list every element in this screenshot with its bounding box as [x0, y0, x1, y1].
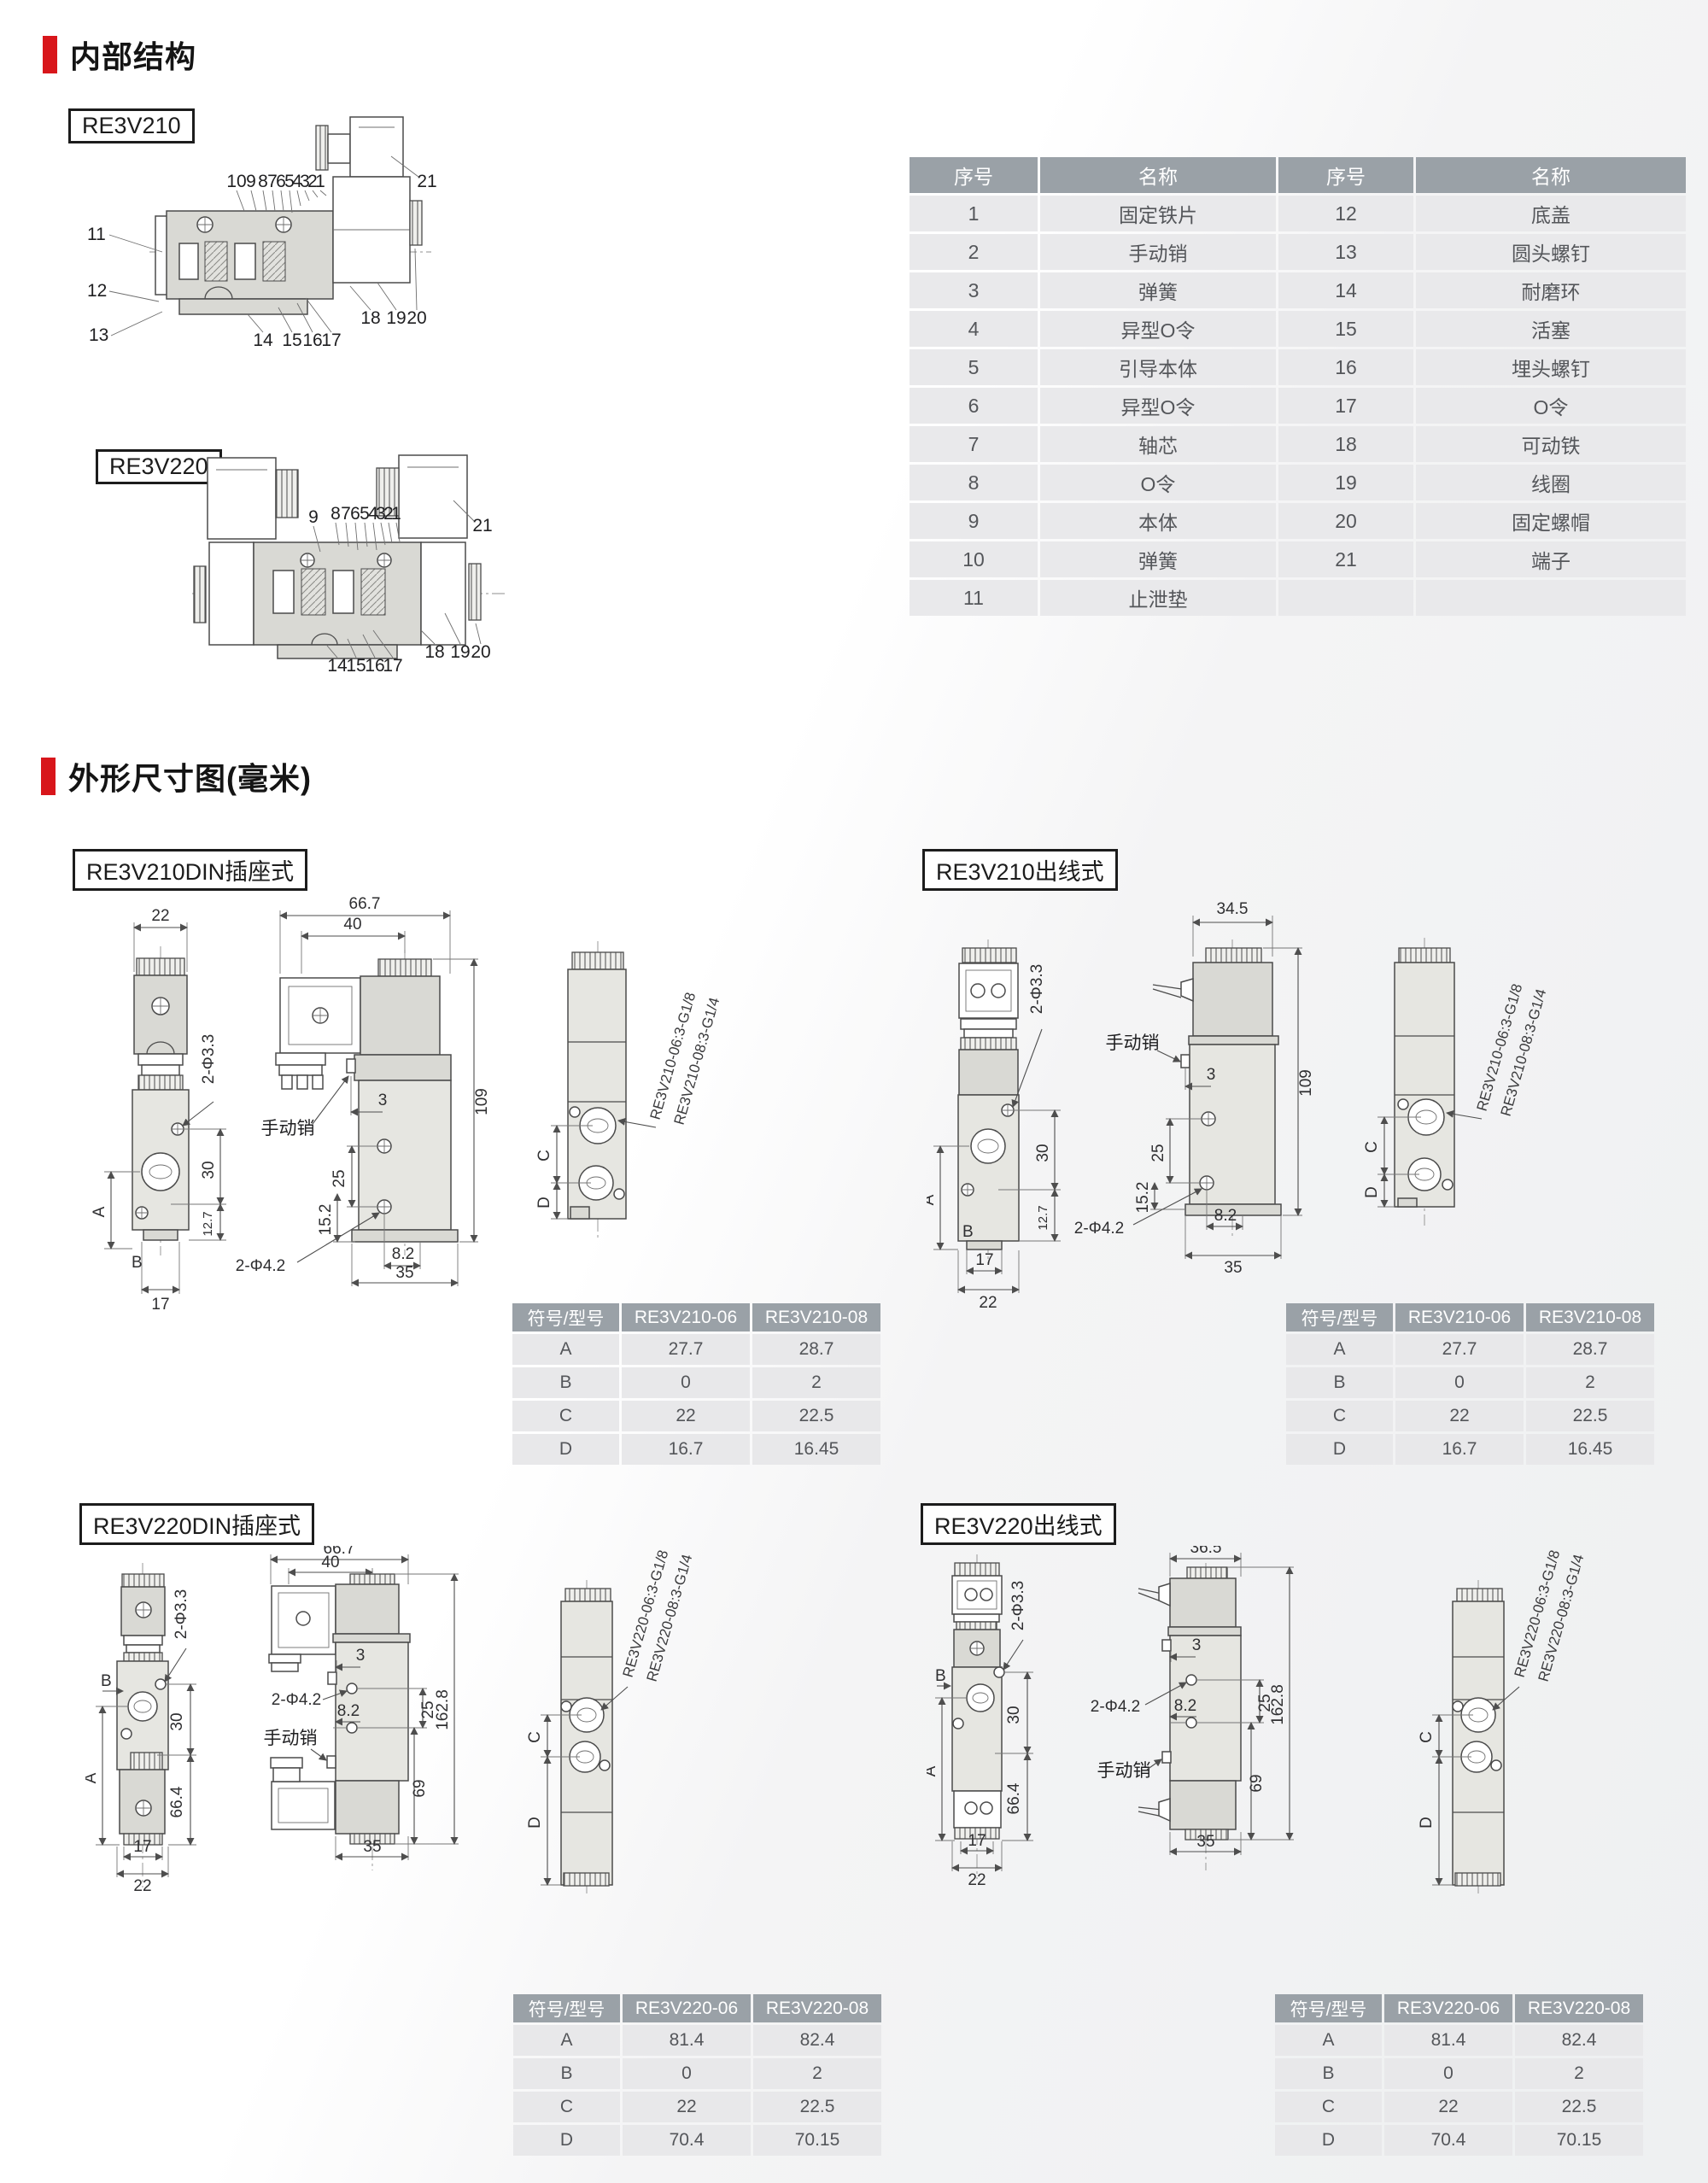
- cell: C: [1275, 2092, 1382, 2122]
- cell: 8: [910, 465, 1038, 500]
- dim-label: 2-Φ3.3: [1028, 964, 1046, 1014]
- cell: 16.7: [622, 1434, 750, 1465]
- table-row: A27.728.7: [512, 1334, 880, 1365]
- manual-pin-label: 手动销: [264, 1729, 318, 1748]
- callout: 10: [226, 172, 246, 191]
- cell: 13: [1278, 234, 1413, 270]
- front-view: 22 2-Φ3.3 30 12.7 A B 17: [91, 907, 226, 1314]
- dim-label: B: [101, 1672, 112, 1690]
- callout: 20: [407, 308, 426, 328]
- cell: 端子: [1416, 541, 1686, 577]
- cell: 异型O令: [1040, 388, 1276, 424]
- dim-label: C: [1363, 1141, 1381, 1153]
- dim-label: 2-Φ4.2: [1074, 1220, 1124, 1238]
- col-header: RE3V210-06: [622, 1303, 750, 1331]
- dim-label: 66.4: [168, 1786, 186, 1817]
- cell: 0: [622, 1367, 750, 1398]
- table-row: 10弹簧21端子: [910, 541, 1686, 577]
- red-accent-bar: [43, 36, 57, 73]
- cell: 22.5: [753, 2092, 881, 2122]
- table-row: D16.716.45: [512, 1434, 880, 1465]
- callout-numbers: 9 8 7 6 5 4 3 2 1 14 15 16 17 18 19 20 2…: [308, 500, 493, 676]
- cell: C: [512, 1401, 619, 1431]
- cell: 可动铁: [1416, 426, 1686, 462]
- cell: 线圈: [1416, 465, 1686, 500]
- cell: B: [1286, 1367, 1393, 1398]
- col-header: 符号/型号: [1275, 1994, 1382, 2022]
- dim-label: 66.4: [1005, 1782, 1023, 1814]
- section-internal-structure-header: 内部结构: [43, 32, 196, 77]
- dim-label: 40: [321, 1554, 339, 1571]
- callout: 3: [376, 504, 386, 524]
- callout: 16: [302, 331, 322, 350]
- cell: 固定铁片: [1040, 196, 1276, 231]
- cell: 4: [910, 311, 1038, 347]
- table-row: C2222.5: [1286, 1401, 1654, 1431]
- callout: 3: [300, 172, 310, 191]
- cell: 81.4: [1384, 2025, 1512, 2056]
- cell: 19: [1278, 465, 1413, 500]
- dim-label: 162.8: [1269, 1684, 1287, 1725]
- dim-label: 22: [151, 907, 169, 925]
- dim-label: 17: [968, 1832, 986, 1850]
- dim-label: 25: [330, 1169, 348, 1187]
- callout: 18: [424, 642, 444, 662]
- dim-label: 12.7: [201, 1211, 215, 1236]
- callout: 2: [307, 172, 318, 191]
- dim-label: 162.8: [434, 1689, 452, 1730]
- cell: 70.15: [1515, 2125, 1643, 2156]
- callout: 20: [471, 642, 490, 662]
- cell: 2: [1526, 1367, 1654, 1398]
- dim-label: 2-Φ3.3: [1009, 1581, 1027, 1630]
- cell: 耐磨环: [1416, 272, 1686, 308]
- dim-label: 109: [473, 1088, 491, 1115]
- catalog-page: 内部结构 RE3V210 RE3V220 10 9 8 7 6 5 4 3 2 …: [0, 0, 1708, 2183]
- callout: 17: [383, 656, 402, 676]
- cell: 12: [1278, 196, 1413, 231]
- table-row: B02: [512, 1367, 880, 1398]
- dim-label: A: [927, 1765, 939, 1776]
- back-view: C D RE3V210-06:3-G1/8 RE3V210-08:3-G1/4: [1363, 938, 1549, 1226]
- parts-header-row: 序号 名称 序号 名称: [910, 157, 1686, 193]
- callout: 4: [292, 172, 302, 191]
- cell: 28.7: [752, 1334, 880, 1365]
- dim-label: D: [526, 1817, 544, 1829]
- table-row: 8O令19线圈: [910, 465, 1686, 500]
- dim-label: 2-Φ3.3: [173, 1589, 190, 1639]
- col-header: RE3V220-06: [1384, 1994, 1512, 2022]
- dim-header-row: 符号/型号 RE3V220-06 RE3V220-08: [1275, 1994, 1643, 2022]
- side-view: 36.5 3 2-Φ4.2 8.2 25 162.8 手动销 69 35: [1091, 1546, 1294, 1870]
- col-header: RE3V210-08: [752, 1303, 880, 1331]
- re3v210-din-dim-table: 符号/型号 RE3V210-06 RE3V210-08 A27.728.7 B0…: [510, 1301, 883, 1467]
- cell: 6: [910, 388, 1038, 424]
- col-header: RE3V220-08: [1515, 1994, 1643, 2022]
- col-header: RE3V220-06: [623, 1994, 751, 2022]
- dim-label: 8.2: [337, 1702, 360, 1720]
- thread-spec-label: RE3V220-08:3-G1/4: [1535, 1553, 1588, 1683]
- cell: 82.4: [1515, 2025, 1643, 2056]
- re3v210-din-drawing: 22 2-Φ3.3 30 12.7 A B 17 66.7 40: [85, 897, 888, 1324]
- callout: 19: [450, 642, 470, 662]
- table-row: C2222.5: [1275, 2092, 1643, 2122]
- cell: 22: [1395, 1401, 1524, 1431]
- cell: 18: [1278, 426, 1413, 462]
- cell: 22: [622, 1401, 750, 1431]
- dim-label: 8.2: [392, 1245, 414, 1263]
- callout: 7: [267, 172, 278, 191]
- callout: 6: [350, 504, 360, 524]
- callout: 1: [315, 172, 325, 191]
- cell: 11: [910, 580, 1038, 616]
- table-row: D70.470.15: [1275, 2125, 1643, 2156]
- block-label-re3v220-wire: RE3V220出线式: [921, 1503, 1116, 1545]
- col-header: 符号/型号: [512, 1303, 619, 1331]
- dim-header-row: 符号/型号 RE3V220-06 RE3V220-08: [513, 1994, 881, 2022]
- table-row: C2222.5: [513, 2092, 881, 2122]
- dim-label: D: [1418, 1817, 1436, 1829]
- col-header: 序号: [910, 157, 1038, 193]
- cell: A: [1275, 2025, 1382, 2056]
- table-row: 1固定铁片12底盖: [910, 196, 1686, 231]
- dim-label: 30: [1034, 1144, 1052, 1162]
- dim-label: 2-Φ3.3: [200, 1034, 218, 1084]
- dim-label: 2-Φ4.2: [1091, 1698, 1140, 1716]
- cell: 22.5: [1515, 2092, 1643, 2122]
- dim-label: 8.2: [1174, 1697, 1196, 1715]
- callout: 7: [341, 504, 351, 524]
- cell: 27.7: [1395, 1334, 1524, 1365]
- cell: 27.7: [622, 1334, 750, 1365]
- cell: 0: [1384, 2058, 1512, 2089]
- block-label-text: RE3V220DIN插座式: [93, 1513, 301, 1539]
- dim-label: 15.2: [1134, 1182, 1152, 1214]
- callout: 18: [360, 308, 380, 328]
- cell: 15: [1278, 311, 1413, 347]
- table-row: B02: [1275, 2058, 1643, 2089]
- cell: 2: [753, 2058, 881, 2089]
- cell: 22.5: [1526, 1401, 1654, 1431]
- cell: 28.7: [1526, 1334, 1654, 1365]
- table-row: A81.482.4: [513, 2025, 881, 2056]
- cell: 圆头螺钉: [1416, 234, 1686, 270]
- table-row: 5引导本体16埋头螺钉: [910, 349, 1686, 385]
- dim-label: C: [1418, 1731, 1436, 1743]
- callout-numbers: 10 9 8 7 6 5 4 3 2 1 11 12 13 14 15 16 1…: [87, 156, 437, 350]
- dim-label: 22: [133, 1877, 151, 1895]
- cell: 7: [910, 426, 1038, 462]
- table-row: 2手动销13圆头螺钉: [910, 234, 1686, 270]
- cell: D: [512, 1434, 619, 1465]
- cell: 9: [910, 503, 1038, 539]
- block-label-text: RE3V220出线式: [934, 1513, 1103, 1539]
- thread-spec-label: RE3V220-06:3-G1/8: [1512, 1548, 1564, 1679]
- dim-label: A: [91, 1206, 108, 1217]
- back-view: C D RE3V210-06:3-G1/8 RE3V210-08:3-G1/4: [535, 941, 722, 1238]
- cell: 埋头螺钉: [1416, 349, 1686, 385]
- col-header: 名称: [1040, 157, 1276, 193]
- cell: [1278, 580, 1413, 616]
- dim-header-row: 符号/型号 RE3V210-06 RE3V210-08: [512, 1303, 880, 1331]
- table-row: B02: [1286, 1367, 1654, 1398]
- thread-spec-label: RE3V210-06:3-G1/8: [1474, 982, 1526, 1113]
- cell: 止泄垫: [1040, 580, 1276, 616]
- dim-label: 8.2: [1214, 1207, 1237, 1225]
- dim-label: 25: [1256, 1694, 1274, 1712]
- callout: 21: [472, 516, 492, 536]
- table-row: 7轴芯18可动铁: [910, 426, 1686, 462]
- dim-label: 30: [168, 1712, 186, 1730]
- callout: 1: [391, 504, 401, 524]
- dim-label: 25: [419, 1700, 437, 1718]
- dim-label: 109: [1297, 1069, 1315, 1097]
- parts-table: 序号 名称 序号 名称 1固定铁片12底盖 2手动销13圆头螺钉 3弹簧14耐磨…: [907, 155, 1688, 618]
- dim-label: 25: [1149, 1144, 1167, 1162]
- cell: O令: [1040, 465, 1276, 500]
- dim-label: B: [132, 1254, 143, 1272]
- dim-label: B: [962, 1223, 974, 1241]
- cell: 弹簧: [1040, 541, 1276, 577]
- callout: 16: [365, 656, 384, 676]
- dim-label: 69: [411, 1779, 429, 1797]
- callout: 15: [282, 331, 301, 350]
- dim-label: 12.7: [1036, 1205, 1050, 1230]
- cell: 手动销: [1040, 234, 1276, 270]
- cell: 17: [1278, 388, 1413, 424]
- dim-label: D: [1363, 1186, 1381, 1198]
- dim-label: 17: [133, 1838, 151, 1856]
- cell: A: [512, 1334, 619, 1365]
- re3v220-din-dim-table: 符号/型号 RE3V220-06 RE3V220-08 A81.482.4 B0…: [511, 1992, 884, 2158]
- dim-label: 69: [1248, 1774, 1266, 1792]
- manual-pin-label: 手动销: [1097, 1761, 1151, 1781]
- re3v220-wire-drawing: B 2-Φ3.3 30 66.4 A 17 22 36.5: [927, 1546, 1708, 2007]
- callout: 12: [87, 281, 107, 301]
- table-row: 6异型O令17O令: [910, 388, 1686, 424]
- dim-label: C: [526, 1731, 544, 1743]
- thread-spec-label: RE3V220-06:3-G1/8: [620, 1548, 672, 1679]
- re3v220-internal-diagram: 9 8 7 6 5 4 3 2 1 14 15 16 17 18 19 20 2…: [192, 451, 508, 682]
- cell: B: [1275, 2058, 1382, 2089]
- col-header: 序号: [1278, 157, 1413, 193]
- model-label-text: RE3V220: [109, 454, 208, 479]
- cell: [1416, 580, 1686, 616]
- model-label-re3v220: RE3V220: [96, 449, 222, 484]
- side-view: 34.5 手动销 3 25 15.2 2-Φ4.2 8.2 35 109: [1074, 900, 1315, 1277]
- table-row: 11止泄垫: [910, 580, 1686, 616]
- dim-label: 35: [1196, 1833, 1214, 1851]
- dim-label: 17: [975, 1251, 993, 1269]
- thread-spec-label: RE3V220-08:3-G1/4: [644, 1553, 696, 1683]
- cell: 5: [910, 349, 1038, 385]
- callout: 2: [383, 504, 394, 524]
- cell: 21: [1278, 541, 1413, 577]
- cell: A: [1286, 1334, 1393, 1365]
- callout: 6: [276, 172, 286, 191]
- cell: 16: [1278, 349, 1413, 385]
- dim-label: 40: [343, 916, 361, 933]
- cell: 81.4: [623, 2025, 751, 2056]
- back-view: C D RE3V220-06:3-G1/8 RE3V220-08:3-G1/4: [526, 1548, 695, 1896]
- dim-header-row: 符号/型号 RE3V210-06 RE3V210-08: [1286, 1303, 1654, 1331]
- cell: 22: [1384, 2092, 1512, 2122]
- table-row: D16.716.45: [1286, 1434, 1654, 1465]
- dim-label: 2-Φ4.2: [272, 1691, 321, 1709]
- re3v210-internal-diagram: 10 9 8 7 6 5 4 3 2 1 11 12 13 14 15 16 1…: [77, 115, 444, 354]
- callout: 21: [417, 172, 436, 191]
- callout: 8: [258, 172, 268, 191]
- dim-label: 35: [395, 1264, 413, 1282]
- dim-label: B: [935, 1667, 946, 1685]
- callout: 9: [246, 172, 256, 191]
- cell: C: [1286, 1401, 1393, 1431]
- col-header: RE3V210-06: [1395, 1303, 1524, 1331]
- cell: 2: [910, 234, 1038, 270]
- back-view: C D RE3V220-06:3-G1/8 RE3V220-08:3-G1/4: [1418, 1548, 1587, 1896]
- cell: 轴芯: [1040, 426, 1276, 462]
- cell: 16.7: [1395, 1434, 1524, 1465]
- table-row: 4异型O令15活塞: [910, 311, 1686, 347]
- cell: 0: [623, 2058, 751, 2089]
- table-row: B02: [513, 2058, 881, 2089]
- table-row: A81.482.4: [1275, 2025, 1643, 2056]
- table-row: 9本体20固定螺帽: [910, 503, 1686, 539]
- dim-label: 3: [1192, 1636, 1202, 1654]
- dim-label: 2-Φ4.2: [236, 1257, 285, 1275]
- dim-label: 30: [200, 1161, 218, 1179]
- callout: 14: [327, 656, 348, 676]
- cell: 活塞: [1416, 311, 1686, 347]
- callout: 11: [87, 225, 106, 244]
- callout: 8: [330, 504, 341, 524]
- section-title: 外形尺寸图(毫米): [68, 754, 312, 799]
- col-header: 符号/型号: [1286, 1303, 1393, 1331]
- cell: 底盖: [1416, 196, 1686, 231]
- block-label-re3v210-wire: RE3V210出线式: [922, 849, 1118, 891]
- cell: A: [513, 2025, 620, 2056]
- red-accent-bar: [41, 758, 56, 795]
- cell: 16.45: [1526, 1434, 1654, 1465]
- model-label-re3v210: RE3V210: [68, 108, 195, 143]
- front-view: B 2-Φ3.3 30 66.4 A 17 22: [85, 1563, 196, 1895]
- re3v210-wire-dim-table: 符号/型号 RE3V210-06 RE3V210-08 A27.728.7 B0…: [1284, 1301, 1657, 1467]
- callout: 13: [89, 325, 108, 345]
- cell: O令: [1416, 388, 1686, 424]
- dim-label: A: [927, 1194, 938, 1205]
- callout: 15: [346, 656, 366, 676]
- col-header: 名称: [1416, 157, 1686, 193]
- dim-label: 22: [979, 1294, 997, 1312]
- re3v210-wire-drawing: 2-Φ3.3 30 12.7 A B 17 22 34.5 手动销: [927, 897, 1708, 1324]
- dim-label: 66.7: [349, 897, 381, 913]
- manual-pin-label: 手动销: [261, 1119, 315, 1138]
- cell: 22.5: [752, 1401, 880, 1431]
- block-label-text: RE3V210出线式: [936, 859, 1104, 885]
- cell: D: [1275, 2125, 1382, 2156]
- dim-label: C: [535, 1150, 553, 1162]
- front-view: 2-Φ3.3 30 12.7 A B 17 22: [927, 939, 1061, 1312]
- cell: 异型O令: [1040, 311, 1276, 347]
- dim-label: 3: [356, 1647, 366, 1665]
- cell: 固定螺帽: [1416, 503, 1686, 539]
- re3v220-wire-dim-table: 符号/型号 RE3V220-06 RE3V220-08 A81.482.4 B0…: [1272, 1992, 1646, 2158]
- dim-label: D: [535, 1197, 553, 1209]
- cell: 14: [1278, 272, 1413, 308]
- dim-label: 3: [1207, 1066, 1216, 1084]
- cell: 0: [1395, 1367, 1524, 1398]
- dim-label: 17: [151, 1296, 169, 1314]
- dim-label: 15.2: [317, 1204, 335, 1236]
- cell: 3: [910, 272, 1038, 308]
- callout: 17: [321, 331, 341, 350]
- cell: 10: [910, 541, 1038, 577]
- dim-label: 35: [363, 1838, 381, 1856]
- col-header: 符号/型号: [513, 1994, 620, 2022]
- cell: 70.15: [753, 2125, 881, 2156]
- section-title: 内部结构: [70, 32, 196, 77]
- col-header: RE3V220-08: [753, 1994, 881, 2022]
- cell: 2: [1515, 2058, 1643, 2089]
- dim-label: 36.5: [1190, 1546, 1222, 1557]
- table-row: 3弹簧14耐磨环: [910, 272, 1686, 308]
- side-view: 66.7 40 3 2-Φ4.2 8.2 25 162.8 手动销: [264, 1546, 459, 1870]
- section-dimensions-header: 外形尺寸图(毫米): [41, 754, 312, 799]
- table-row: C2222.5: [512, 1401, 880, 1431]
- cell: 引导本体: [1040, 349, 1276, 385]
- callout: 4: [368, 504, 378, 524]
- re3v220-din-drawing: B 2-Φ3.3 30 66.4 A 17 22 66.7 40: [85, 1546, 888, 2007]
- dim-label: 34.5: [1217, 900, 1249, 918]
- cell: B: [512, 1367, 619, 1398]
- dim-label: 66.7: [324, 1546, 355, 1558]
- cell: C: [513, 2092, 620, 2122]
- side-view: 66.7 40 手动销 3 25 15.2 2-Φ4.2 8.2 35: [236, 897, 491, 1286]
- valve-cross-section: [192, 455, 505, 658]
- cell: 20: [1278, 503, 1413, 539]
- cell: 70.4: [1384, 2125, 1512, 2156]
- valve-cross-section: [149, 117, 431, 314]
- dim-label: 35: [1224, 1259, 1242, 1277]
- cell: D: [1286, 1434, 1393, 1465]
- dim-label: A: [85, 1772, 100, 1783]
- block-label-re3v210din: RE3V210DIN插座式: [73, 849, 307, 891]
- dim-label: 22: [968, 1871, 986, 1889]
- thread-spec-label: RE3V210-08:3-G1/4: [671, 996, 723, 1127]
- callout: 5: [360, 504, 370, 524]
- thread-spec-label: RE3V210-08:3-G1/4: [1498, 987, 1550, 1118]
- cell: 70.4: [623, 2125, 751, 2156]
- cell: 2: [752, 1367, 880, 1398]
- table-row: D70.470.15: [513, 2125, 881, 2156]
- dim-label: 30: [1005, 1706, 1023, 1724]
- cell: 82.4: [753, 2025, 881, 2056]
- callout: 19: [386, 308, 406, 328]
- cell: 16.45: [752, 1434, 880, 1465]
- cell: 弹簧: [1040, 272, 1276, 308]
- block-label-text: RE3V210DIN插座式: [86, 859, 294, 885]
- block-label-re3v220din: RE3V220DIN插座式: [79, 1503, 314, 1545]
- thread-spec-label: RE3V210-06:3-G1/8: [647, 991, 699, 1121]
- col-header: RE3V210-08: [1526, 1303, 1654, 1331]
- model-label-text: RE3V210: [82, 113, 181, 138]
- cell: D: [513, 2125, 620, 2156]
- dim-label: 3: [378, 1091, 388, 1109]
- front-view: B 2-Φ3.3 30 66.4 A 17 22: [927, 1554, 1033, 1889]
- callout: 9: [308, 507, 319, 527]
- cell: 1: [910, 196, 1038, 231]
- callout: 5: [284, 172, 295, 191]
